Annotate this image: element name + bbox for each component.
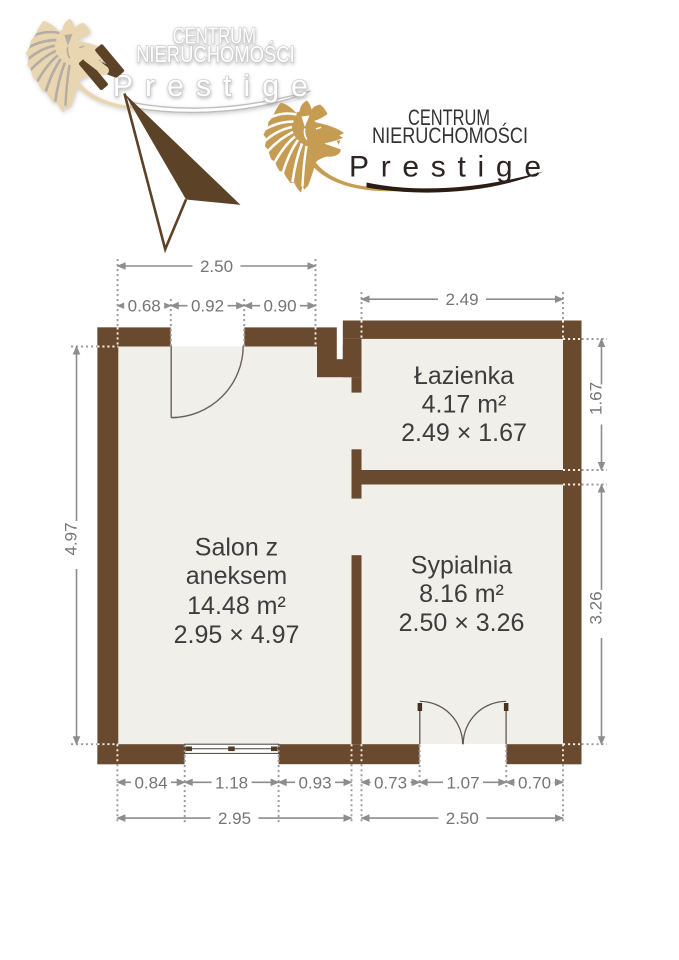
svg-text:0.84: 0.84 (134, 773, 167, 792)
svg-text:14.48 m²: 14.48 m² (187, 592, 286, 620)
svg-text:1.07: 1.07 (446, 773, 479, 792)
svg-text:0.70: 0.70 (518, 773, 551, 792)
svg-text:0.92: 0.92 (191, 297, 224, 316)
svg-text:0.93: 0.93 (298, 773, 331, 792)
svg-text:1.18: 1.18 (215, 773, 248, 792)
svg-text:Prestige: Prestige (113, 69, 308, 103)
svg-text:8.16 m²: 8.16 m² (419, 580, 504, 608)
svg-text:4.17 m²: 4.17 m² (422, 390, 507, 418)
svg-text:3.26: 3.26 (587, 591, 606, 624)
svg-text:2.49 × 1.67: 2.49 × 1.67 (401, 419, 527, 447)
svg-text:2.49: 2.49 (445, 290, 478, 309)
svg-text:Łazienka: Łazienka (414, 362, 514, 390)
svg-text:0.90: 0.90 (263, 297, 296, 316)
svg-text:2.95: 2.95 (218, 809, 251, 828)
svg-text:NIERUCHOMOŚCI: NIERUCHOMOŚCI (136, 41, 295, 67)
svg-text:Sypialnia: Sypialnia (411, 552, 513, 580)
svg-text:4.97: 4.97 (62, 522, 81, 555)
svg-text:Salon z: Salon z (195, 533, 278, 561)
svg-text:2.50: 2.50 (446, 809, 479, 828)
svg-text:2.50 × 3.26: 2.50 × 3.26 (399, 609, 525, 637)
svg-text:0.73: 0.73 (374, 773, 407, 792)
svg-text:NIERUCHOMOŚCI: NIERUCHOMOŚCI (372, 123, 528, 148)
svg-text:2.95 × 4.97: 2.95 × 4.97 (174, 621, 300, 649)
svg-text:2.50: 2.50 (200, 257, 233, 276)
svg-text:0.68: 0.68 (128, 297, 161, 316)
svg-text:Prestige: Prestige (349, 151, 541, 184)
svg-text:1.67: 1.67 (587, 382, 606, 415)
svg-text:aneksem: aneksem (186, 562, 287, 590)
